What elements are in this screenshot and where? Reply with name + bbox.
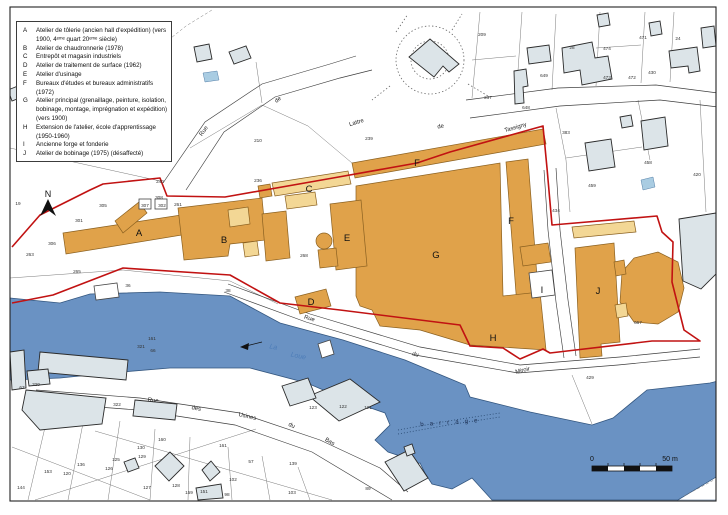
parcel-number: 434 [552, 208, 560, 213]
parcel-number: 322 [113, 402, 121, 407]
scale-end: 50 m [662, 456, 678, 463]
parcel-number: 126 [105, 466, 113, 471]
building-label: D [308, 297, 315, 308]
parcel-number: 307 [141, 203, 149, 208]
parcel-number: 98 [224, 492, 230, 497]
building-label: C [306, 184, 313, 195]
legend-text: Bureaux d'études et bureaux administrati… [36, 80, 168, 98]
parcel-number: 153 [44, 469, 52, 474]
legend-item: JAtelier de bobinage (1975) (désaffecté) [23, 150, 168, 159]
scale-start: 0 [590, 456, 594, 463]
parcel-number: 302 [158, 203, 166, 208]
legend-letter: F [23, 80, 36, 89]
parcel-number: 648 [522, 105, 530, 110]
legend-item: GAtelier principal (grenaillage, peintur… [23, 97, 168, 123]
building-label: E [344, 233, 350, 244]
legend-text: Atelier de tôlerie (ancien hall d'expédi… [36, 27, 168, 45]
parcel-number: 19 [15, 201, 21, 206]
parcel-number: 89 [365, 486, 371, 491]
parcel-number: 121 [364, 405, 372, 410]
parcel-number: 129 [138, 454, 146, 459]
building-label: I [541, 285, 544, 296]
parcel-number: 130 [137, 445, 145, 450]
north-label: N [45, 189, 52, 199]
parcel-number: 473 [603, 75, 611, 80]
legend-letter: B [23, 45, 36, 54]
parcel-number: 24 [675, 36, 681, 41]
parcel-number: 28 [569, 45, 575, 50]
parcel-number: 261 [174, 202, 182, 207]
parcel-number: 308 [155, 195, 163, 200]
parcel-number: 161 [148, 336, 156, 341]
legend-text: Atelier de traitement de surface (1962) [36, 62, 168, 71]
parcel-number: 430 [648, 70, 656, 75]
parcel-number: 429 [586, 375, 594, 380]
parcel-number: 103 [288, 490, 296, 495]
parcel-number: 57 [248, 459, 254, 464]
parcel-number: 160 [158, 437, 166, 442]
parcel-number: 301 [75, 218, 83, 223]
parcel-number: 161 [219, 443, 227, 448]
parcel-number: 268 [300, 253, 308, 258]
building-label: B [221, 235, 227, 246]
legend-letter: G [23, 97, 36, 106]
parcel-number: 237 [484, 95, 492, 100]
legend-text: Ancienne forge et fonderie [36, 141, 168, 150]
building-label: F [508, 216, 514, 227]
legend-item: AAtelier de tôlerie (ancien hall d'expéd… [23, 27, 168, 45]
parcel-number: 265 [73, 269, 81, 274]
site-plan: 1924030830530730226130130626326521023923… [0, 0, 728, 515]
parcel-number: 102 [229, 477, 237, 482]
parcel-number: 240 [156, 179, 164, 184]
parcel-number: 128 [172, 483, 180, 488]
parcel-number: 472 [628, 75, 636, 80]
parcel-number: 123 [309, 405, 317, 410]
legend-item: DAtelier de traitement de surface (1962) [23, 62, 168, 71]
legend-item: FBureaux d'études et bureaux administrat… [23, 80, 168, 98]
parcel-number: 120 [63, 471, 71, 476]
parcel-number: 139 [289, 461, 297, 466]
legend-item: BAtelier de chaudronnerie (1978) [23, 45, 168, 54]
parcel-number: 144 [17, 485, 25, 490]
parcel-number: 36 [125, 283, 131, 288]
legend-letter: I [23, 141, 36, 150]
parcel-number: 151 [200, 489, 208, 494]
parcel-number: 67 [19, 385, 25, 390]
legend-item: CEntrepôt et magasin industriels [23, 53, 168, 62]
legend-letter: C [23, 53, 36, 62]
parcel-number: 320 [32, 382, 40, 387]
tank [316, 233, 332, 249]
parcel-number: 474 [603, 46, 611, 51]
parcel-number: 136 [77, 462, 85, 467]
building-J [575, 243, 620, 358]
parcel-number: 236 [254, 178, 262, 183]
parcel-number: 38 [225, 288, 231, 293]
parcel-number: 459 [588, 183, 596, 188]
legend-text: Entrepôt et magasin industriels [36, 53, 168, 62]
parcel-number: 125 [112, 457, 120, 462]
legend-letter: H [23, 124, 36, 133]
legend-item: IAncienne forge et fonderie [23, 141, 168, 150]
street-label: Rue [147, 397, 159, 404]
building-label: H [490, 333, 497, 344]
legend-item: EAtelier d'usinage [23, 71, 168, 80]
parcel-number: 209 [478, 32, 486, 37]
legend-text: Atelier principal (grenaillage, peinture… [36, 97, 168, 123]
building-label: F [414, 158, 420, 169]
legend-letter: A [23, 27, 36, 36]
legend-letter: D [23, 62, 36, 71]
parcel-number: 305 [99, 203, 107, 208]
parcel-number: 649 [540, 73, 548, 78]
legend-item: HExtension de l'atelier, école d'apprent… [23, 124, 168, 142]
legend-letter: E [23, 71, 36, 80]
building-label: J [596, 286, 601, 297]
parcel-number: 210 [254, 138, 262, 143]
legend-box: AAtelier de tôlerie (ancien hall d'expéd… [16, 21, 172, 162]
parcel-number: 127 [143, 485, 151, 490]
building-label: G [432, 250, 439, 261]
parcel-number: 263 [26, 252, 34, 257]
parcel-number: 239 [365, 136, 373, 141]
parcel-number: 66 [150, 348, 156, 353]
parcel-number: 471 [639, 35, 647, 40]
pond [203, 71, 219, 82]
parcel-number: 458 [644, 160, 652, 165]
parcel-number: 667 [634, 320, 642, 325]
parcel-number: 122 [339, 404, 347, 409]
building-label: A [136, 228, 143, 239]
legend-text: Extension de l'atelier, école d'apprenti… [36, 124, 168, 142]
legend-text: Atelier de chaudronnerie (1978) [36, 45, 168, 54]
parcel-number: 420 [693, 172, 701, 177]
legend-text: Atelier d'usinage [36, 71, 168, 80]
legend-letter: J [23, 150, 36, 159]
parcel-number: 383 [562, 130, 570, 135]
parcel-number: 306 [48, 241, 56, 246]
legend-text: Atelier de bobinage (1975) (désaffecté) [36, 150, 168, 159]
parcel-number: 321 [137, 344, 145, 349]
parcel-number: 159 [185, 490, 193, 495]
